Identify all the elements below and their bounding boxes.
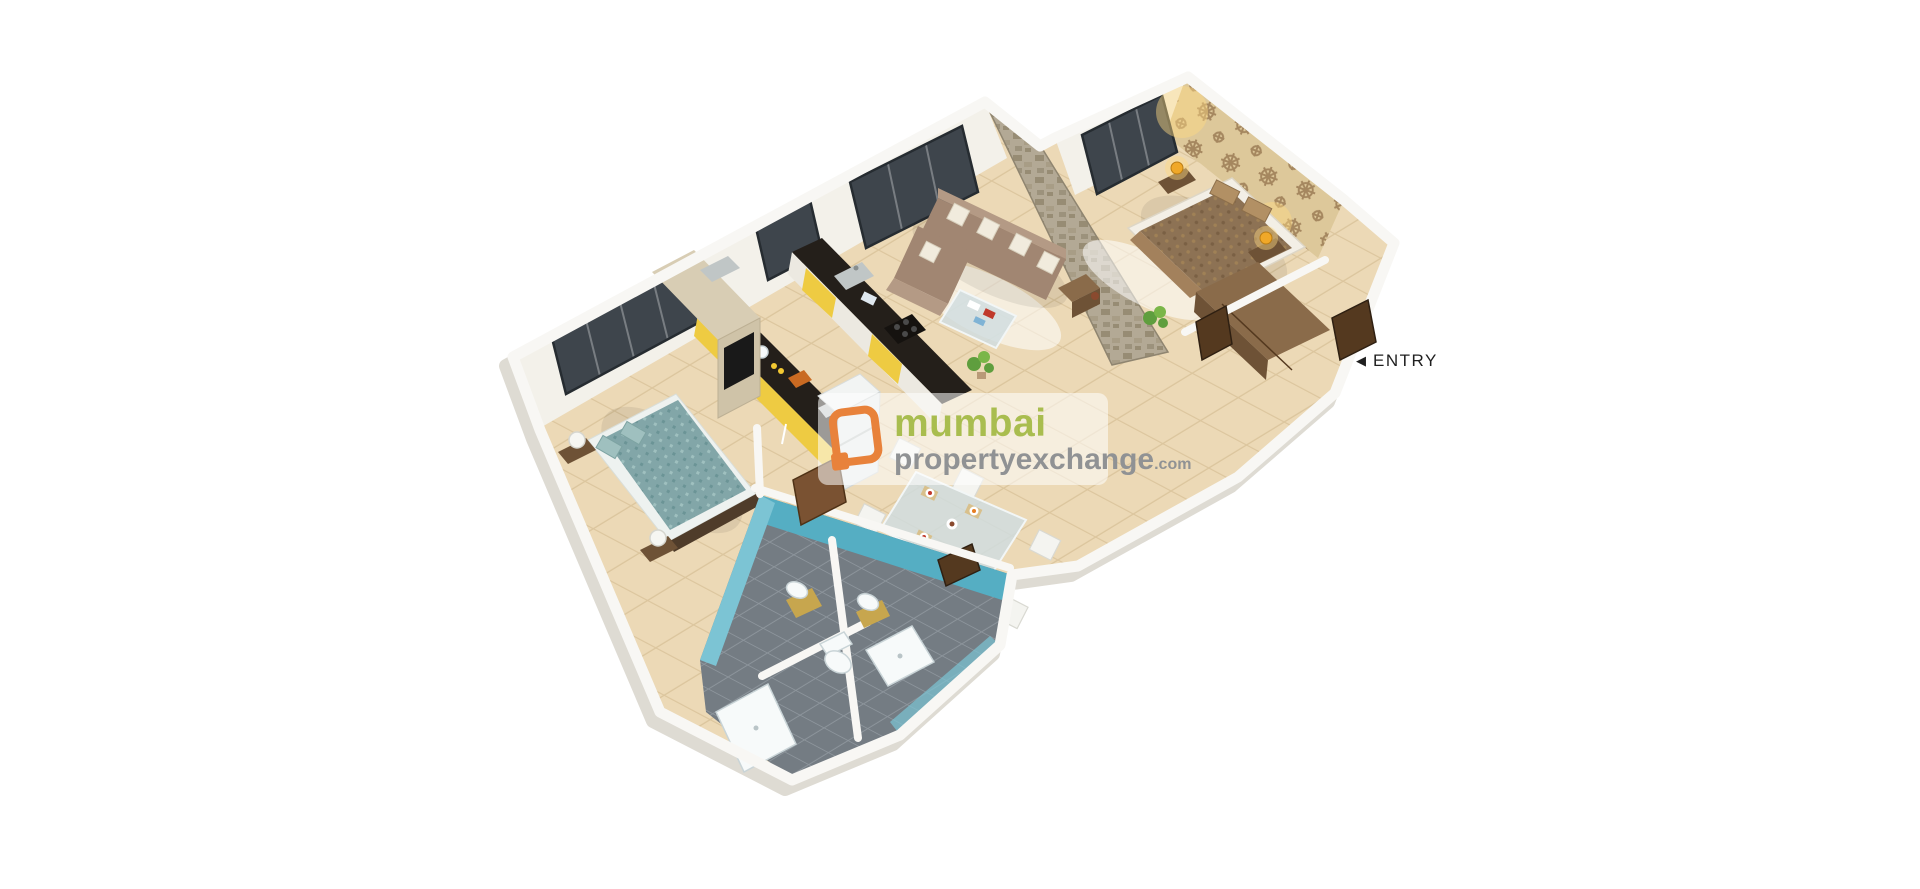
amber-lamp-icon: [1171, 162, 1183, 174]
shower-drain-icon: [754, 726, 759, 731]
white-lamp-icon: [569, 432, 585, 448]
vase: [1091, 292, 1099, 300]
brand-line2-text: propertyexchange: [894, 443, 1154, 476]
brand-suffix: .com: [1154, 456, 1191, 473]
entry-label-text: ENTRY: [1373, 351, 1438, 371]
bedroom2-passage-wall: [757, 428, 760, 494]
watermark-logo: mumbai propertyexchange.com: [818, 393, 1108, 485]
brand-frame-icon: [826, 403, 884, 475]
white-lamp-2-icon: [650, 530, 666, 546]
entry-arrow-icon: ◀: [1356, 353, 1366, 369]
brand-line1: mumbai: [894, 404, 1191, 443]
lemon-2: [778, 368, 784, 374]
shower-drain-2-icon: [898, 654, 903, 659]
lemon: [771, 363, 777, 369]
entry-label: ◀ ENTRY: [1356, 351, 1438, 371]
amber-lamp-2-icon: [1260, 232, 1272, 244]
brand-line2: propertyexchange.com: [894, 445, 1191, 475]
brand-text: mumbai propertyexchange.com: [894, 404, 1191, 475]
